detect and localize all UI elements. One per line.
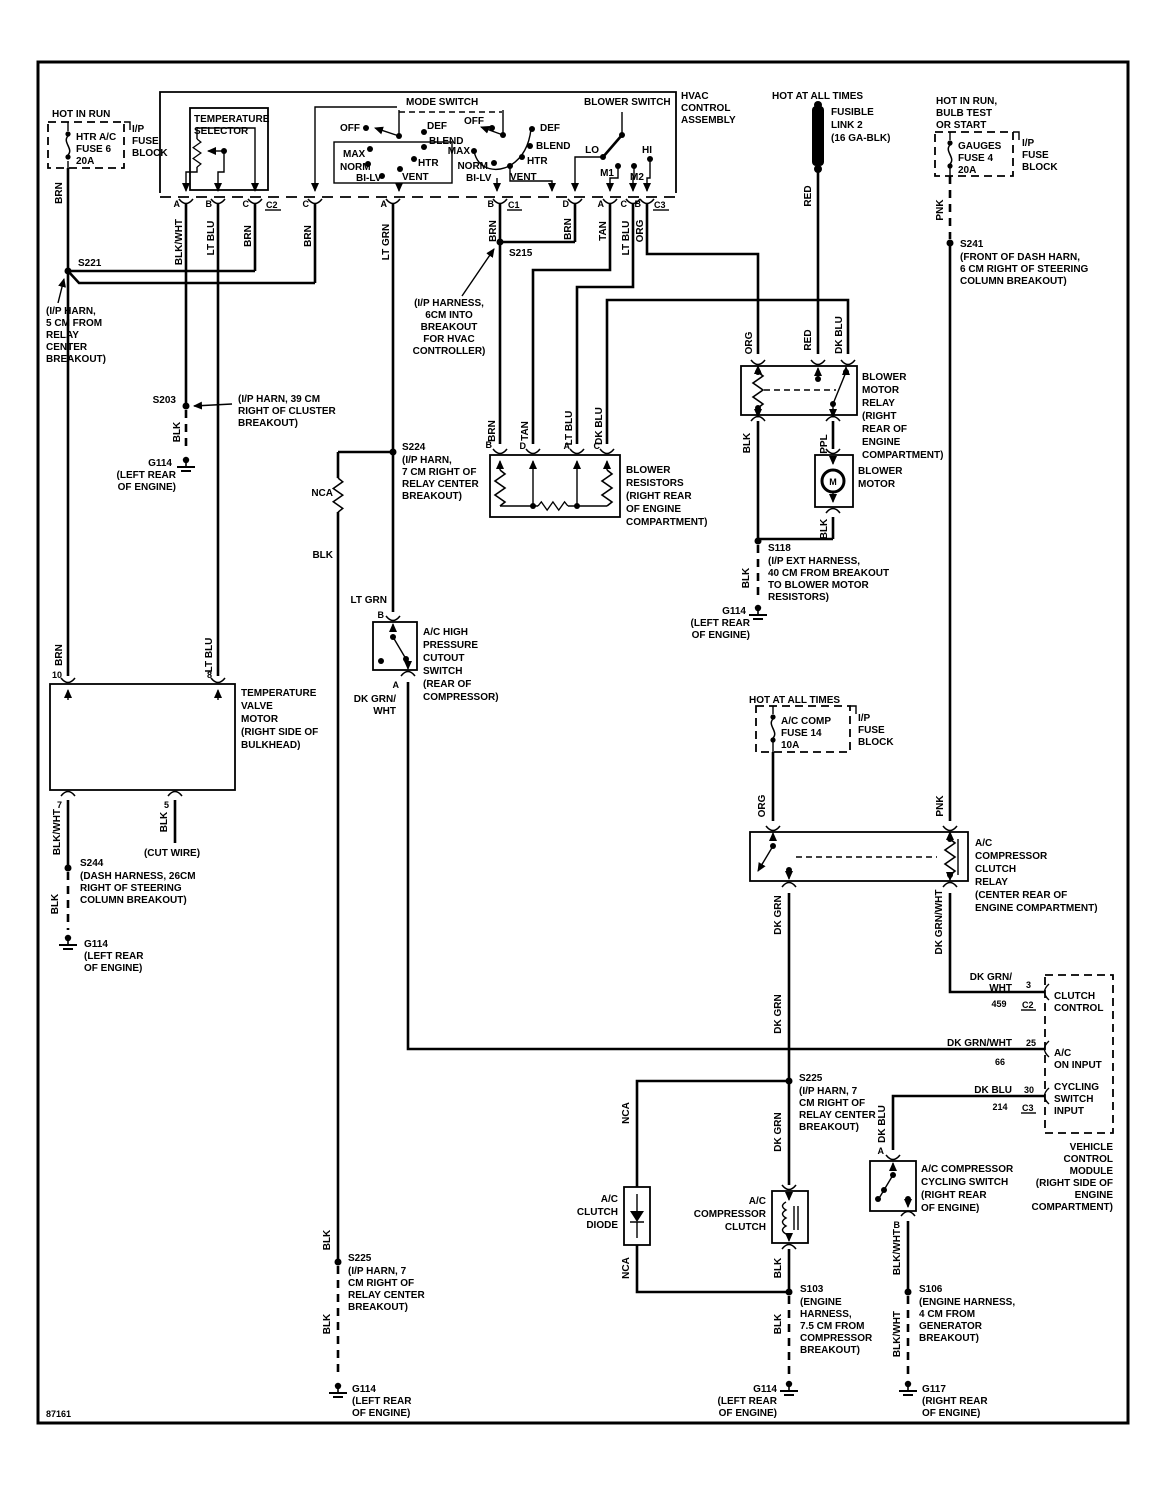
splice-s225-left: S225 <box>348 1253 372 1264</box>
svg-text:M2: M2 <box>630 172 644 183</box>
svg-text:OF ENGINE: OF ENGINE <box>626 504 681 515</box>
svg-text:D: D <box>563 199 570 209</box>
svg-text:ORG: ORG <box>757 794 768 817</box>
svg-text:BLK: BLK <box>172 421 183 442</box>
htr-ac-fuse: HOT IN RUN HTR A/C FUSE 6 20A I/P FUSE B… <box>48 109 168 168</box>
svg-text:DK GRN/: DK GRN/ <box>970 972 1012 983</box>
svg-text:(REAR OF: (REAR OF <box>423 679 471 690</box>
svg-text:BLK: BLK <box>312 550 333 561</box>
splice-s224: S224 <box>402 442 426 453</box>
svg-text:LT GRN: LT GRN <box>351 595 387 606</box>
svg-text:B: B <box>488 199 495 209</box>
svg-text:DK BLU: DK BLU <box>877 1105 888 1143</box>
svg-text:BRN: BRN <box>488 220 499 242</box>
svg-text:CONTROL: CONTROL <box>1064 1154 1113 1165</box>
svg-text:DK GRN: DK GRN <box>773 1112 784 1151</box>
svg-text:COLUMN BREAKOUT): COLUMN BREAKOUT) <box>960 276 1067 287</box>
svg-text:REAR OF: REAR OF <box>862 424 907 435</box>
svg-text:BLK: BLK <box>50 893 61 914</box>
svg-text:G114: G114 <box>352 1384 376 1395</box>
blower-motor-relay-label: BLOWER <box>862 372 907 383</box>
svg-text:BREAKOUT): BREAKOUT) <box>238 418 298 429</box>
svg-text:RIGHT OF STEERING: RIGHT OF STEERING <box>80 883 182 894</box>
svg-text:CYCLING SWITCH: CYCLING SWITCH <box>921 1177 1008 1188</box>
svg-text:OFF: OFF <box>340 123 360 134</box>
svg-text:C2: C2 <box>1022 1000 1034 1010</box>
svg-text:OF ENGINE): OF ENGINE) <box>921 1203 979 1214</box>
connector-c2: C2 <box>266 200 278 210</box>
svg-text:M: M <box>829 477 837 487</box>
svg-text:ENGINE: ENGINE <box>862 437 901 448</box>
svg-text:DK BLU: DK BLU <box>834 316 845 354</box>
svg-text:FUSE 4: FUSE 4 <box>958 153 993 164</box>
svg-text:A: A <box>878 1146 885 1156</box>
svg-text:B: B <box>894 1220 901 1230</box>
pin-5: 5 <box>164 800 169 810</box>
svg-text:BLK: BLK <box>819 518 830 539</box>
svg-text:OFF: OFF <box>464 116 484 127</box>
svg-text:CONTROL: CONTROL <box>1054 1003 1103 1014</box>
svg-text:MAX: MAX <box>448 146 471 157</box>
wiring-diagram-page: 87161 HOT IN RUN HTR A/C FUSE 6 20A I/P … <box>0 0 1164 1502</box>
svg-text:OF ENGINE): OF ENGINE) <box>922 1408 980 1419</box>
svg-text:LINK 2: LINK 2 <box>831 120 863 131</box>
svg-text:(16 GA-BLK): (16 GA-BLK) <box>831 133 890 144</box>
svg-text:FUSE: FUSE <box>858 725 885 736</box>
svg-text:A: A <box>381 199 388 209</box>
svg-text:(RIGHT REAR: (RIGHT REAR <box>921 1190 987 1201</box>
svg-text:NCA: NCA <box>621 1102 632 1124</box>
svg-text:RESISTORS: RESISTORS <box>626 478 684 489</box>
svg-text:SWITCH: SWITCH <box>1054 1094 1093 1105</box>
svg-text:C: C <box>303 199 310 209</box>
svg-text:(I/P HARN, 7: (I/P HARN, 7 <box>799 1086 858 1097</box>
svg-text:5 CM FROM: 5 CM FROM <box>46 318 102 329</box>
svg-text:DIODE: DIODE <box>586 1220 618 1231</box>
hp-cutout-label: A/C HIGH <box>423 627 468 638</box>
ac-compressor-clutch: DK GRN A/C COMPRESSOR CLUTCH BLK S103 (E… <box>694 1112 873 1419</box>
ip-fuse-block: I/P <box>132 124 145 135</box>
splice-s203: S203 <box>153 395 177 406</box>
svg-text:BRN: BRN <box>563 218 574 240</box>
diagram-id: 87161 <box>46 1409 71 1419</box>
svg-text:PNK: PNK <box>935 795 946 817</box>
svg-text:BLK/WHT: BLK/WHT <box>52 809 63 855</box>
svg-text:ENGINE: ENGINE <box>1075 1190 1114 1201</box>
svg-text:BULB TEST: BULB TEST <box>936 108 992 119</box>
svg-text:BLK/WHT: BLK/WHT <box>892 1311 903 1357</box>
svg-text:NCA: NCA <box>621 1257 632 1279</box>
hvac-control-assembly: HVAC CONTROL ASSEMBLY TEMPERATURE SELECT… <box>160 91 736 265</box>
vcm-clutch-control: CLUTCH <box>1054 991 1095 1002</box>
svg-text:A: A <box>393 680 400 690</box>
svg-text:OF ENGINE): OF ENGINE) <box>84 963 142 974</box>
splice-s118: S118 <box>768 543 791 554</box>
g117-label: G117 <box>922 1384 946 1395</box>
vcm-pin-30: 30 <box>1024 1085 1034 1095</box>
svg-text:ASSEMBLY: ASSEMBLY <box>681 115 736 126</box>
fuse6-line2: FUSE 6 <box>76 144 111 155</box>
svg-text:(RIGHT SIDE OF: (RIGHT SIDE OF <box>241 727 318 738</box>
svg-text:RELAY: RELAY <box>975 877 1008 888</box>
blower-motor-label: BLOWER <box>858 466 903 477</box>
connector-c1: C1 <box>508 200 520 210</box>
svg-text:(DASH HARNESS, 26CM: (DASH HARNESS, 26CM <box>80 871 196 882</box>
s224-nca-branch: S224 (I/P HARN, 7 CM RIGHT OF RELAY CENT… <box>311 204 479 1419</box>
svg-text:FUSE 14: FUSE 14 <box>781 728 822 739</box>
svg-text:COMPRESSOR): COMPRESSOR) <box>423 692 499 703</box>
svg-text:HARNESS,: HARNESS, <box>800 1309 852 1320</box>
svg-text:BRN: BRN <box>303 225 314 247</box>
svg-text:BLOCK: BLOCK <box>1022 162 1058 173</box>
svg-text:WHT: WHT <box>373 706 396 717</box>
svg-text:CONTROLLER): CONTROLLER) <box>413 346 486 357</box>
svg-text:NCA: NCA <box>311 488 333 499</box>
ground-g114 <box>749 605 767 619</box>
svg-text:DK GRN/WHT: DK GRN/WHT <box>947 1038 1012 1049</box>
cycling-switch-label: A/C COMPRESSOR <box>921 1164 1014 1175</box>
svg-text:COMPARTMENT): COMPARTMENT) <box>862 450 943 461</box>
svg-text:HOT AT ALL TIMES: HOT AT ALL TIMES <box>749 695 840 706</box>
splice-s106: S106 <box>919 1284 943 1295</box>
gauges-fuse: HOT IN RUN, BULB TEST OR START GAUGES FU… <box>935 96 1089 821</box>
svg-text:FUSE: FUSE <box>132 136 159 147</box>
svg-text:RIGHT OF CLUSTER: RIGHT OF CLUSTER <box>238 406 337 417</box>
svg-text:OF ENGINE): OF ENGINE) <box>719 1408 777 1419</box>
pin-10: 10 <box>52 670 62 680</box>
svg-text:VENT: VENT <box>402 172 429 183</box>
svg-text:(LEFT REAR: (LEFT REAR <box>84 951 144 962</box>
fuse14-label: A/C COMP <box>781 716 831 727</box>
g114-label: G114 <box>84 939 108 950</box>
svg-text:C: C <box>621 199 628 209</box>
svg-text:CLUTCH: CLUTCH <box>577 1207 618 1218</box>
svg-text:ORG: ORG <box>635 219 646 242</box>
svg-text:20A: 20A <box>958 165 976 176</box>
fuse6-line1: HTR A/C <box>76 132 116 143</box>
svg-text:BLK: BLK <box>322 1313 333 1334</box>
svg-text:OF ENGINE): OF ENGINE) <box>692 630 750 641</box>
svg-text:RELAY CENTER: RELAY CENTER <box>799 1110 876 1121</box>
svg-text:(RIGHT: (RIGHT <box>862 411 896 422</box>
svg-text:HI: HI <box>642 145 652 156</box>
svg-text:COMPARTMENT): COMPARTMENT) <box>1032 1202 1113 1213</box>
svg-text:A: A <box>174 199 181 209</box>
svg-text:DEF: DEF <box>427 121 447 132</box>
svg-text:40 CM FROM BREAKOUT: 40 CM FROM BREAKOUT <box>768 568 889 579</box>
ground-g117 <box>899 1381 917 1395</box>
circuit-66: 66 <box>995 1057 1005 1067</box>
svg-text:DK GRN/: DK GRN/ <box>354 694 396 705</box>
svg-text:G114: G114 <box>722 606 746 617</box>
svg-text:MOTOR: MOTOR <box>241 714 279 725</box>
svg-text:LT BLU: LT BLU <box>204 638 215 673</box>
svg-text:RELAY CENTER: RELAY CENTER <box>348 1290 425 1301</box>
svg-text:NORM: NORM <box>457 161 488 172</box>
svg-text:BLK: BLK <box>159 811 170 832</box>
svg-text:LT BLU: LT BLU <box>621 221 632 256</box>
svg-text:PRESSURE: PRESSURE <box>423 640 478 651</box>
svg-text:4 CM FROM: 4 CM FROM <box>919 1309 975 1320</box>
svg-text:ON INPUT: ON INPUT <box>1054 1060 1102 1071</box>
svg-text:BREAKOUT): BREAKOUT) <box>919 1333 979 1344</box>
svg-text:BULKHEAD): BULKHEAD) <box>241 740 300 751</box>
svg-text:BLK: BLK <box>773 1313 784 1334</box>
splice-s221: S221 <box>78 258 102 269</box>
svg-text:7.5 CM FROM: 7.5 CM FROM <box>800 1321 864 1332</box>
svg-text:CONTROL: CONTROL <box>681 103 730 114</box>
tvm-label: TEMPERATURE <box>241 688 317 699</box>
svg-text:C3: C3 <box>1022 1103 1034 1113</box>
blower-resistors-label: BLOWER <box>626 465 671 476</box>
svg-text:10A: 10A <box>781 740 799 751</box>
fusible-link: HOT AT ALL TIMES FUSIBLE LINK 2 (16 GA-B… <box>772 91 890 354</box>
svg-text:(I/P HARN, 39 CM: (I/P HARN, 39 CM <box>238 394 320 405</box>
pin-7: 7 <box>57 800 62 810</box>
svg-text:TAN: TAN <box>598 221 609 241</box>
svg-text:D: D <box>520 441 527 451</box>
svg-text:(ENGINE HARNESS,: (ENGINE HARNESS, <box>919 1297 1015 1308</box>
svg-text:TEMPERATURE: TEMPERATURE <box>194 114 270 125</box>
blower-switch-label: BLOWER SWITCH <box>584 97 671 108</box>
svg-text:(RIGHT REAR: (RIGHT REAR <box>626 491 692 502</box>
ac-cycling-switch: A B A/C COMPRESSOR CYCLING SWITCH (RIGHT… <box>870 1146 1015 1419</box>
blower-switch: BLOWER SWITCH LO M1 M2 HI <box>575 97 671 191</box>
svg-text:BLOCK: BLOCK <box>858 737 894 748</box>
svg-text:(I/P HARNESS,: (I/P HARNESS, <box>414 298 484 309</box>
svg-text:OF ENGINE): OF ENGINE) <box>352 1408 410 1419</box>
svg-text:DK GRN: DK GRN <box>773 994 784 1033</box>
ac-compressor-clutch-relay: A/C COMPRESSOR CLUTCH RELAY (CENTER REAR… <box>750 826 1098 914</box>
svg-text:I/P: I/P <box>1022 138 1035 149</box>
blower-resistors: B D A C BRN TAN LT BLU DK BLU BLOWER RES… <box>486 407 708 528</box>
svg-text:DK GRN/WHT: DK GRN/WHT <box>934 890 945 955</box>
svg-text:(CENTER REAR OF: (CENTER REAR OF <box>975 890 1067 901</box>
svg-text:RELAY: RELAY <box>862 398 895 409</box>
svg-text:BLK/WHT: BLK/WHT <box>174 219 185 265</box>
svg-text:VALVE: VALVE <box>241 701 273 712</box>
svg-text:(I/P HARN,: (I/P HARN, <box>402 455 452 466</box>
svg-text:(RIGHT REAR: (RIGHT REAR <box>922 1396 988 1407</box>
ac-relay-label: A/C <box>975 838 992 849</box>
cut-wire-label: (CUT WIRE) <box>144 848 200 859</box>
svg-text:BLK: BLK <box>322 1229 333 1250</box>
s118-ground-branch: S118 (I/P EXT HARNESS, 40 CM FROM BREAKO… <box>691 421 890 641</box>
svg-text:NORM: NORM <box>340 162 371 173</box>
hvac-connector-row: A B C C2 C A B C1 D A C B C3 <box>174 199 670 210</box>
svg-text:HTR: HTR <box>527 156 548 167</box>
svg-text:BLK/WHT: BLK/WHT <box>892 1229 903 1275</box>
svg-text:CUTOUT: CUTOUT <box>423 653 464 664</box>
svg-text:RED: RED <box>803 185 814 206</box>
svg-text:B: B <box>206 199 213 209</box>
svg-text:FUSE: FUSE <box>1022 150 1049 161</box>
diode-icon <box>630 1211 644 1222</box>
svg-text:A: A <box>598 199 605 209</box>
blower-feed-wires <box>533 204 848 444</box>
ground-g114 <box>59 935 77 949</box>
svg-text:I/P: I/P <box>858 713 871 724</box>
svg-text:MAX: MAX <box>343 149 366 160</box>
svg-text:(LEFT REAR: (LEFT REAR <box>718 1396 778 1407</box>
fusible-link-label: FUSIBLE <box>831 107 874 118</box>
svg-text:B: B <box>635 199 642 209</box>
svg-text:PNK: PNK <box>935 199 946 221</box>
svg-text:CLUTCH: CLUTCH <box>725 1222 766 1233</box>
svg-text:MOTOR: MOTOR <box>858 479 896 490</box>
svg-text:DEF: DEF <box>540 123 560 134</box>
diode-label: A/C <box>601 1194 618 1205</box>
wiring-diagram: 87161 HOT IN RUN HTR A/C FUSE 6 20A I/P … <box>0 0 1164 1502</box>
wire-label-brn: BRN <box>54 182 65 204</box>
svg-text:FOR HVAC: FOR HVAC <box>423 334 474 345</box>
svg-text:BI-LV: BI-LV <box>356 173 382 184</box>
svg-text:BLEND: BLEND <box>536 141 570 152</box>
ac-clutch-label: A/C <box>749 1196 766 1207</box>
splice-s225-right: S225 <box>799 1073 823 1084</box>
svg-text:MOTOR: MOTOR <box>862 385 900 396</box>
fuse4-label: GAUGES <box>958 141 1002 152</box>
svg-text:C: C <box>243 199 250 209</box>
svg-text:(ENGINE: (ENGINE <box>800 1297 842 1308</box>
svg-text:BREAKOUT): BREAKOUT) <box>799 1122 859 1133</box>
svg-text:INPUT: INPUT <box>1054 1106 1084 1117</box>
svg-text:CM RIGHT OF: CM RIGHT OF <box>348 1278 414 1289</box>
svg-text:BRN: BRN <box>243 225 254 247</box>
svg-text:(LEFT REAR: (LEFT REAR <box>117 470 177 481</box>
svg-text:OR START: OR START <box>936 120 986 131</box>
temperature-selector: TEMPERATURE SELECTOR <box>186 108 270 191</box>
ground-g114 <box>329 1383 347 1397</box>
mode-switch: MODE SWITCH OFF DEF BLEND MAX NORM BI-LV… <box>315 97 570 191</box>
svg-text:(LEFT REAR: (LEFT REAR <box>691 618 751 629</box>
hvac-assembly-label: HVAC <box>681 91 709 102</box>
svg-text:DK GRN: DK GRN <box>773 895 784 934</box>
svg-text:COMPRESSOR: COMPRESSOR <box>694 1209 767 1220</box>
splice-s241: S241 <box>960 239 984 250</box>
temperature-valve-motor: 10 8 TEMPERATURE VALVE MOTOR (RIGHT SIDE… <box>50 670 318 974</box>
blower-motor-relay: ORG DK BLU BLOWER MOTOR RELAY (RIGHT REA… <box>741 316 943 461</box>
splice-s244: S244 <box>80 858 104 869</box>
svg-text:MODULE: MODULE <box>1070 1166 1114 1177</box>
svg-text:LO: LO <box>585 145 599 156</box>
ground-g114 <box>177 457 195 471</box>
vcm-pin-25: 25 <box>1026 1038 1036 1048</box>
svg-text:COMPARTMENT): COMPARTMENT) <box>626 517 707 528</box>
svg-text:COMPRESSOR: COMPRESSOR <box>975 851 1048 862</box>
svg-text:COLUMN BREAKOUT): COLUMN BREAKOUT) <box>80 895 187 906</box>
svg-text:BLOCK: BLOCK <box>132 148 168 159</box>
svg-text:BLK: BLK <box>773 1257 784 1278</box>
svg-text:BREAKOUT): BREAKOUT) <box>46 354 106 365</box>
hp-cutout-switch: LT GRN B A A/C HIGH PRESSURE CUTOUT SWIT… <box>351 595 1045 1049</box>
svg-text:CM RIGHT OF: CM RIGHT OF <box>799 1098 865 1109</box>
svg-text:RELAY CENTER: RELAY CENTER <box>402 479 479 490</box>
svg-text:GENERATOR: GENERATOR <box>919 1321 983 1332</box>
svg-text:BREAKOUT): BREAKOUT) <box>402 491 462 502</box>
svg-text:G114: G114 <box>753 1384 777 1395</box>
svg-text:(FRONT OF DASH HARN,: (FRONT OF DASH HARN, <box>960 252 1080 263</box>
s221-note: (I/P HARN, <box>46 306 96 317</box>
svg-text:(I/P EXT HARNESS,: (I/P EXT HARNESS, <box>768 556 860 567</box>
svg-text:(I/P HARN, 7: (I/P HARN, 7 <box>348 1266 407 1277</box>
fuse6-line3: 20A <box>76 156 94 167</box>
mode-switch-label: MODE SWITCH <box>406 97 478 108</box>
ac-clutch-diode: NCA A/C CLUTCH DIODE NCA <box>577 1081 789 1292</box>
svg-text:BREAKOUT): BREAKOUT) <box>348 1302 408 1313</box>
svg-text:BRN: BRN <box>54 644 65 666</box>
svg-text:CENTER: CENTER <box>46 342 88 353</box>
svg-text:G114: G114 <box>148 458 172 469</box>
svg-text:COMPRESSOR: COMPRESSOR <box>800 1333 873 1344</box>
svg-text:WHT: WHT <box>989 983 1012 994</box>
svg-text:B: B <box>378 610 385 620</box>
svg-text:HTR: HTR <box>418 158 439 169</box>
splice-s215: S215 <box>509 248 533 259</box>
circuit-459: 459 <box>991 999 1006 1009</box>
svg-text:RED: RED <box>803 329 814 350</box>
svg-text:BLK: BLK <box>741 567 752 588</box>
splice-s103: S103 <box>800 1284 824 1295</box>
vcm-ac-on-input: A/C <box>1054 1048 1071 1059</box>
svg-text:LT BLU: LT BLU <box>206 221 217 256</box>
svg-text:6 CM RIGHT OF STEERING: 6 CM RIGHT OF STEERING <box>960 264 1089 275</box>
svg-text:BREAKOUT: BREAKOUT <box>421 322 478 333</box>
svg-text:ENGINE COMPARTMENT): ENGINE COMPARTMENT) <box>975 903 1098 914</box>
svg-text:HOT AT ALL TIMES: HOT AT ALL TIMES <box>772 91 863 102</box>
vcm-cycling-input: CYCLING <box>1054 1082 1099 1093</box>
ac-comp-fuse: HOT AT ALL TIMES A/C COMP FUSE 14 10A I/… <box>749 695 894 821</box>
svg-text:RESISTORS): RESISTORS) <box>768 592 829 603</box>
connector-c3: C3 <box>654 200 666 210</box>
svg-text:DK BLU: DK BLU <box>974 1085 1012 1096</box>
svg-text:BI-LV: BI-LV <box>466 173 492 184</box>
svg-text:(RIGHT SIDE OF: (RIGHT SIDE OF <box>1036 1178 1113 1189</box>
svg-text:SWITCH: SWITCH <box>423 666 462 677</box>
svg-text:CLUTCH: CLUTCH <box>975 864 1016 875</box>
hot-in-run-label: HOT IN RUN <box>52 109 110 120</box>
svg-text:BLK: BLK <box>742 432 753 453</box>
svg-text:6CM INTO: 6CM INTO <box>425 310 473 321</box>
svg-text:TO BLOWER MOTOR: TO BLOWER MOTOR <box>768 580 870 591</box>
svg-text:RELAY: RELAY <box>46 330 79 341</box>
svg-text:OF ENGINE): OF ENGINE) <box>118 482 176 493</box>
vcm-pin-3: 3 <box>1026 980 1031 990</box>
svg-text:7 CM RIGHT OF: 7 CM RIGHT OF <box>402 467 476 478</box>
svg-text:BREAKOUT): BREAKOUT) <box>800 1345 860 1356</box>
svg-text:DK BLU: DK BLU <box>594 407 605 445</box>
svg-text:LT GRN: LT GRN <box>381 224 392 260</box>
svg-text:(LEFT REAR: (LEFT REAR <box>352 1396 412 1407</box>
svg-text:ORG: ORG <box>744 331 755 354</box>
svg-text:LT BLU: LT BLU <box>564 411 575 446</box>
ground-g114 <box>780 1381 798 1395</box>
vcm-label: VEHICLE <box>1070 1142 1114 1153</box>
svg-text:HOT IN RUN,: HOT IN RUN, <box>936 96 997 107</box>
circuit-214: 214 <box>992 1102 1007 1112</box>
svg-text:TAN: TAN <box>520 421 531 441</box>
svg-text:BRN: BRN <box>487 420 498 442</box>
